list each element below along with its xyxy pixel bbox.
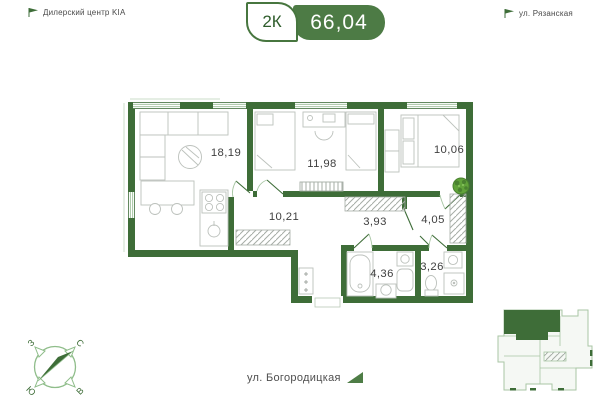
site-plan xyxy=(498,310,593,391)
rooms-count-label: 2К xyxy=(262,12,281,32)
room-area-label: 3,26 xyxy=(420,261,444,273)
compass-east-label: В xyxy=(74,385,85,396)
entrance-door xyxy=(312,296,343,307)
total-area-label: 66,04 xyxy=(310,11,368,35)
bedroom1-furniture xyxy=(255,112,376,191)
room-area-label: 11,98 xyxy=(307,158,336,170)
rooms-count-badge: 2К xyxy=(246,2,298,42)
street-bottom-label: ул. Богородицкая xyxy=(247,372,341,384)
wc-fixtures xyxy=(425,252,464,296)
room-area-label: 18,19 xyxy=(211,147,241,159)
room-area-label: 10,21 xyxy=(269,211,299,223)
street-bottom: ул. Богородицкая xyxy=(247,371,364,385)
room-area-label: 10,06 xyxy=(434,144,464,156)
room-area-label: 4,36 xyxy=(370,268,394,280)
floorplan-page: Дилерский центр KIA 2К 66,04 ул. Рязанск… xyxy=(0,0,605,403)
total-area-badge: 66,04 xyxy=(293,5,385,40)
room-area-label: 4,05 xyxy=(421,214,445,226)
compass-icon: З С Ю В xyxy=(24,337,86,398)
plant-icon xyxy=(453,178,469,194)
living-room-furniture xyxy=(140,112,228,246)
triangle-arrow-icon xyxy=(347,371,364,385)
utility-panel xyxy=(299,268,313,294)
room-area-label: 3,93 xyxy=(363,216,387,228)
compass-north-label: С xyxy=(74,337,86,349)
floor-plan-canvas: 18,19 11,98 10,06 10,21 3,93 4,05 4,36 3… xyxy=(0,0,605,403)
